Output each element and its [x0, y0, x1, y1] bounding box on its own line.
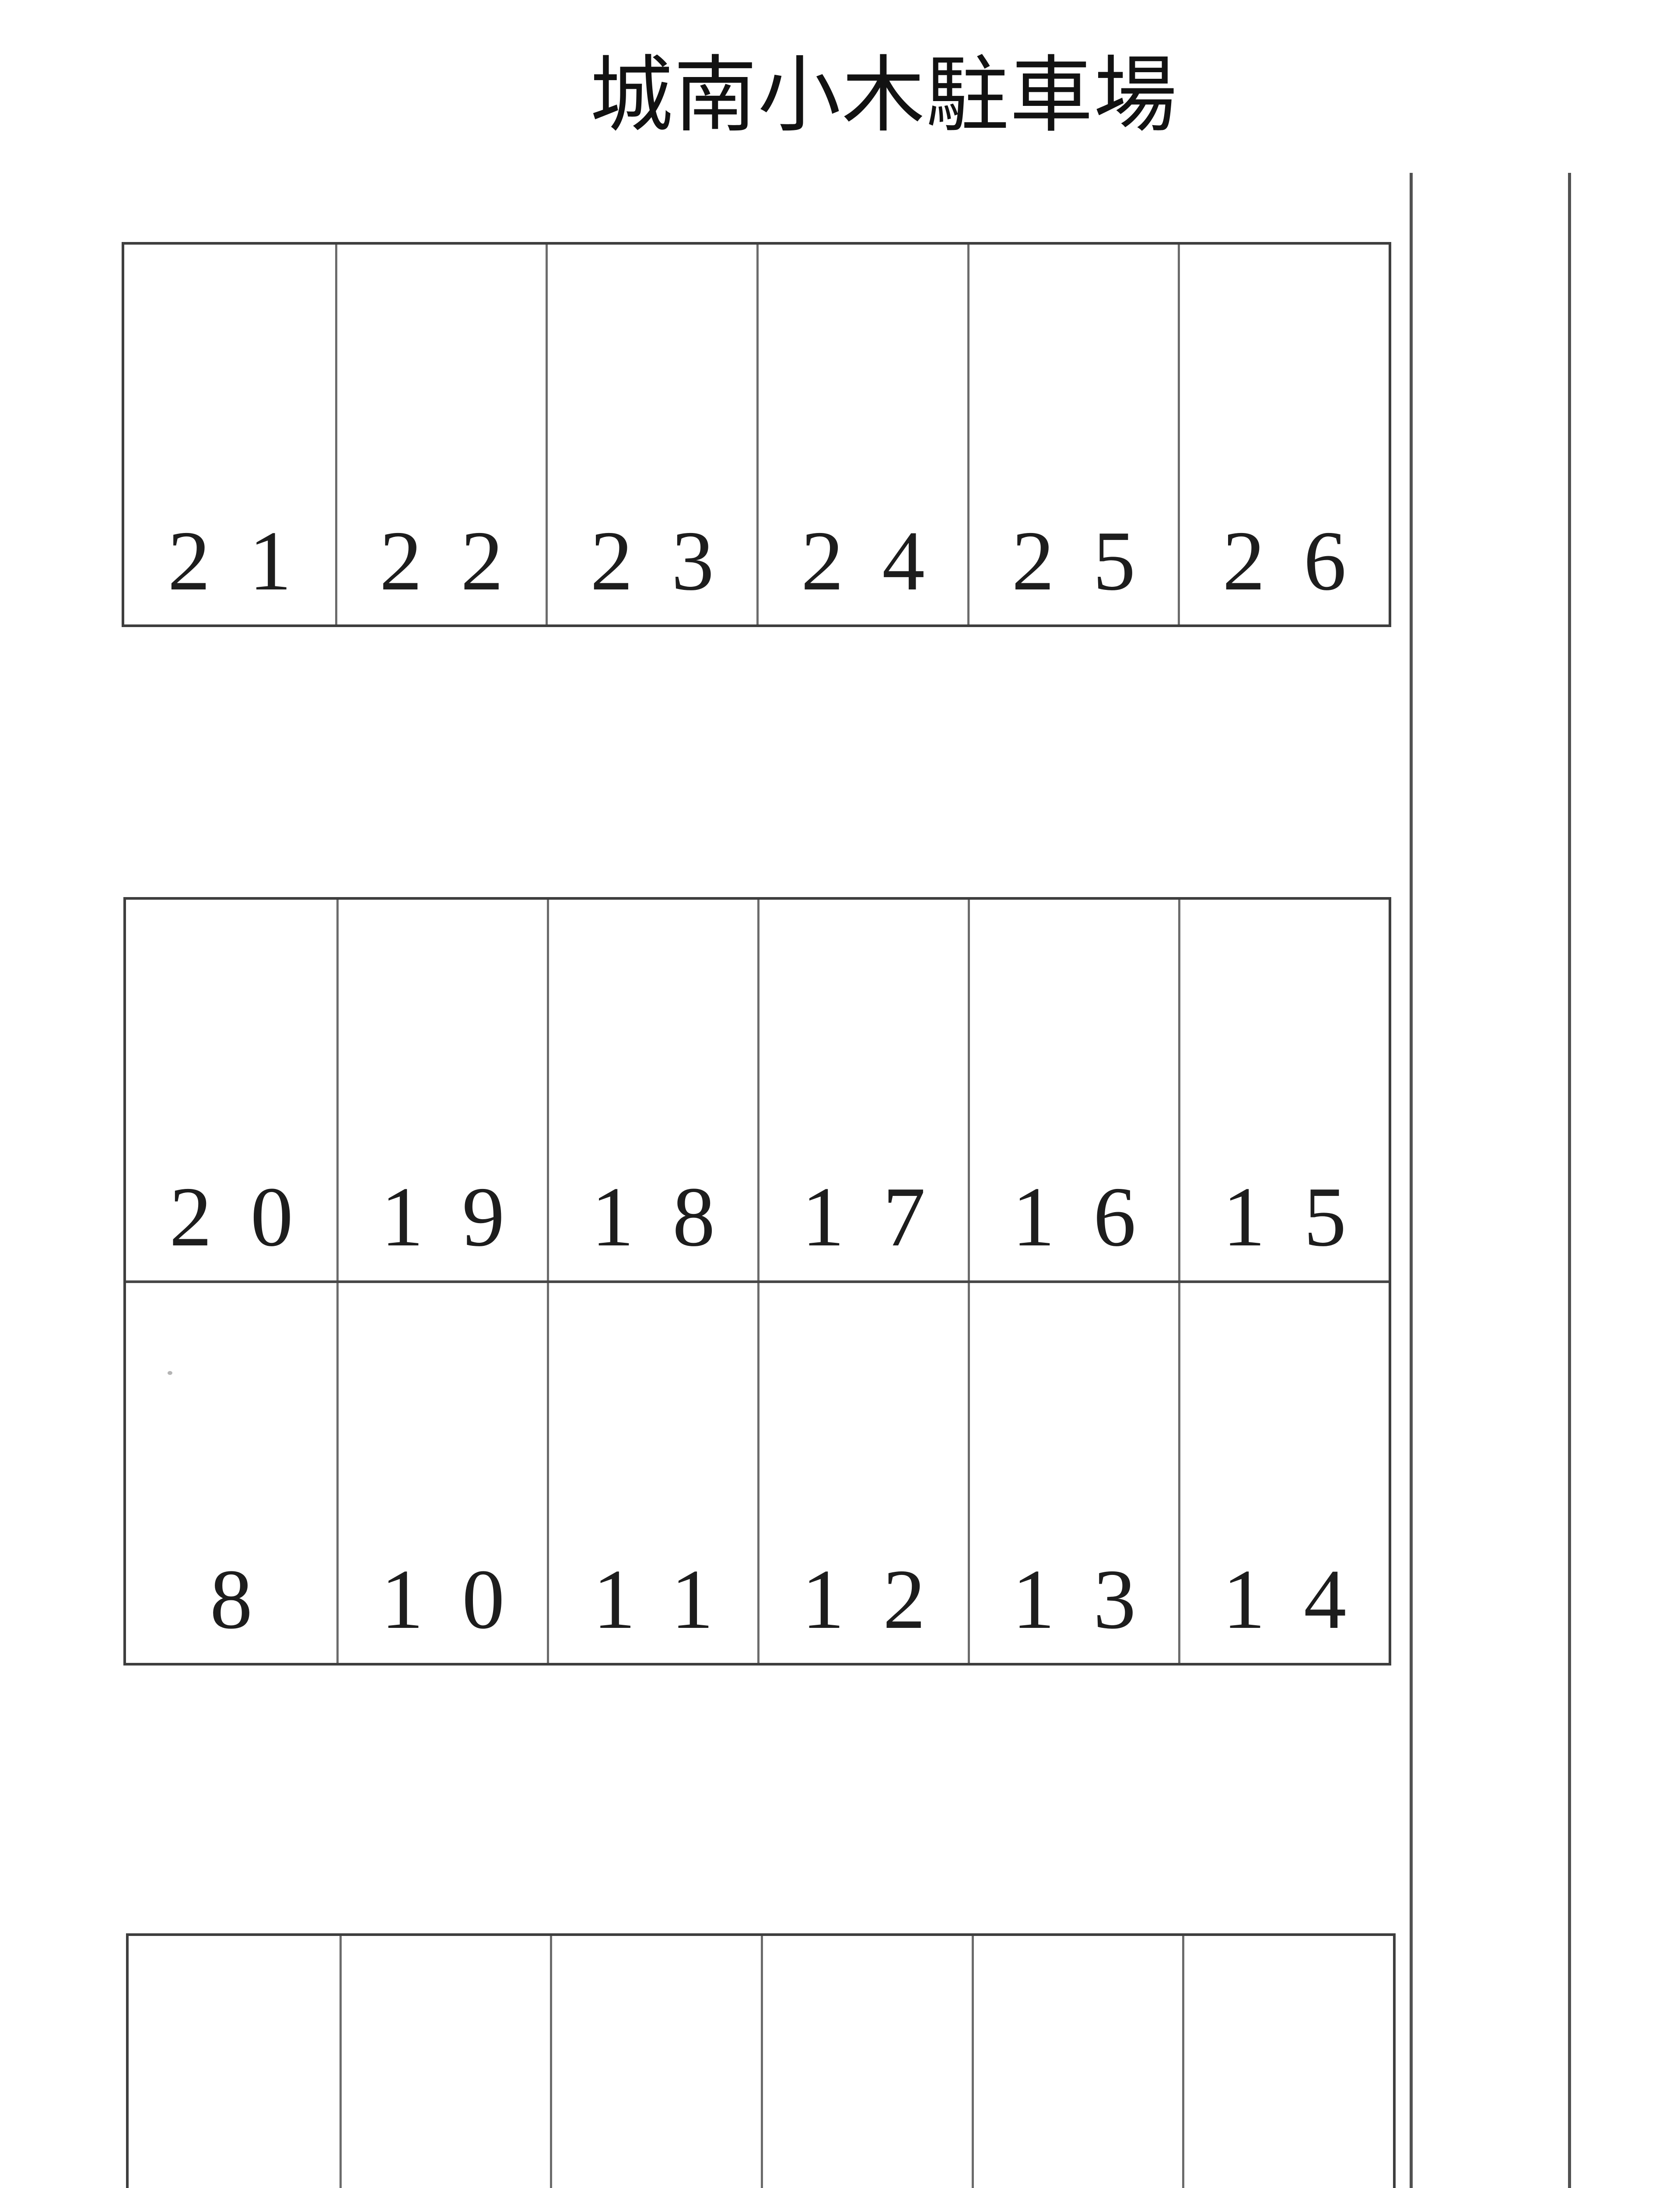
parking-space-24: 24: [756, 245, 967, 624]
parking-space-20: 20: [126, 900, 336, 1280]
space-number: 14: [1180, 1550, 1389, 1648]
road-boundary-line-inner: [1410, 173, 1413, 2188]
space-number: 24: [759, 512, 967, 610]
space-number: 11: [549, 1550, 757, 1648]
space-number: 15: [1180, 1168, 1389, 1266]
parking-space-17: 17: [757, 900, 968, 1280]
parking-space-21: 21: [124, 245, 335, 624]
parking-block-bottom: 7 6 5 3 2 1: [126, 1933, 1396, 2188]
parking-space-6: 6: [339, 1936, 550, 2188]
space-number: 17: [759, 1168, 968, 1266]
parking-row: 7 6 5 3 2 1: [129, 1936, 1393, 2188]
space-number: 10: [339, 1550, 547, 1648]
parking-space-18: 18: [547, 900, 757, 1280]
space-number: 13: [970, 1550, 1178, 1648]
parking-space-1: 1: [1182, 1936, 1393, 2188]
parking-space-11: 11: [547, 1283, 757, 1663]
parking-space-14: 14: [1178, 1283, 1389, 1663]
space-number: 22: [337, 512, 546, 610]
parking-space-2: 2: [972, 1936, 1183, 2188]
parking-space-26: 26: [1178, 245, 1389, 624]
parking-row: 8 10 11 12 13 14: [126, 1280, 1389, 1663]
space-number: 16: [970, 1168, 1178, 1266]
space-number: 26: [1180, 512, 1389, 610]
parking-space-16: 16: [968, 900, 1178, 1280]
parking-space-19: 19: [336, 900, 547, 1280]
space-number: 20: [126, 1168, 336, 1266]
parking-space-12: 12: [757, 1283, 968, 1663]
space-number: 12: [759, 1550, 968, 1648]
parking-space-22: 22: [335, 245, 546, 624]
space-number: 18: [549, 1168, 757, 1266]
parking-space-23: 23: [546, 245, 756, 624]
space-number: 23: [548, 512, 756, 610]
parking-map-page: 城南小木駐車場 21 22 23 24 25 26 20 19 18 17 16…: [0, 0, 1680, 2188]
space-number: 21: [124, 512, 335, 610]
parking-space-10: 10: [336, 1283, 547, 1663]
parking-row: 21 22 23 24 25 26: [124, 245, 1389, 624]
space-number: 19: [339, 1168, 547, 1266]
parking-space-3: 3: [761, 1936, 972, 2188]
parking-space-8: 8: [126, 1283, 336, 1663]
parking-space-5: 5: [550, 1936, 761, 2188]
parking-block-middle: 20 19 18 17 16 15 8 10 11 12 13 14: [123, 897, 1391, 1666]
parking-row: 20 19 18 17 16 15: [126, 900, 1389, 1280]
parking-space-7: 7: [129, 1936, 339, 2188]
space-number: 25: [969, 512, 1178, 610]
parking-space-13: 13: [968, 1283, 1178, 1663]
space-number: 8: [126, 1550, 336, 1648]
scan-speck: [168, 1371, 172, 1375]
page-title: 城南小木駐車場: [569, 48, 1199, 144]
road-boundary-line-outer: [1568, 173, 1571, 2188]
parking-space-25: 25: [967, 245, 1178, 624]
parking-space-15: 15: [1178, 900, 1389, 1280]
parking-block-top: 21 22 23 24 25 26: [122, 242, 1391, 627]
